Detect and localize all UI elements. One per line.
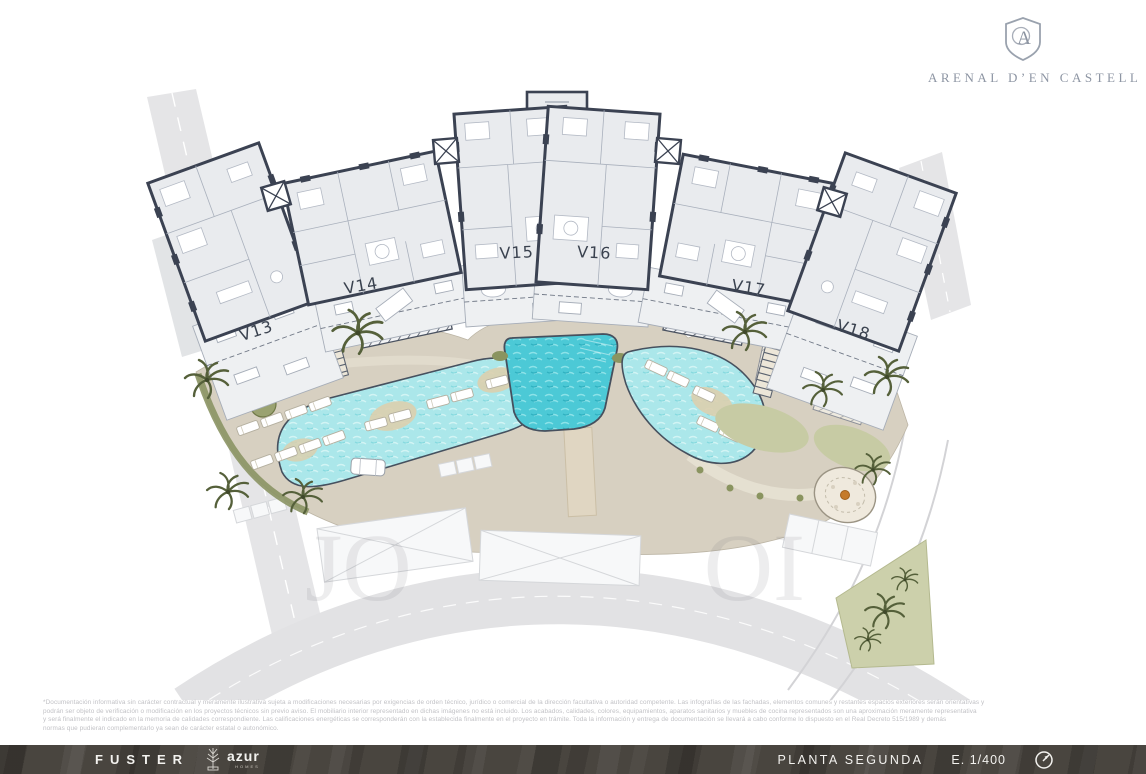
floorplan-page: A ARENAL D’EN CASTELL (0, 0, 1146, 774)
footer-bar: FUSTER azur HOMES PLANTA SEGUNDA E. 1/40… (0, 745, 1146, 774)
azur-logo: azur HOMES (204, 748, 260, 771)
scale-label: E. 1/400 (951, 753, 1006, 767)
disclaimer-line: normas que pudieran complementarlo ya se… (43, 725, 1108, 734)
disclaimer-line: y será finalmente el indicado en la memo… (43, 716, 1108, 725)
unit-label-v15: V15 (499, 242, 534, 263)
disclaimer-line: podrán ser objeto de verificación o modi… (43, 708, 1108, 717)
fuster-logo: FUSTER (95, 752, 189, 767)
floor-title: PLANTA SEGUNDA (778, 753, 924, 767)
disclaimer-line: *Documentación informativa sin carácter … (43, 699, 1108, 708)
unit-label-v16: V16 (577, 242, 612, 263)
site-plan: V13 V14 V15 V16 V17 V18 (0, 0, 1146, 700)
disclaimer: *Documentación informativa sin carácter … (43, 699, 1108, 733)
north-compass-icon (1034, 750, 1054, 770)
azur-tree-icon (204, 748, 222, 771)
building-v16 (533, 106, 663, 290)
car (350, 458, 385, 476)
azur-wordmark: azur (227, 750, 260, 763)
azur-sub-label: HOMES (227, 764, 260, 769)
